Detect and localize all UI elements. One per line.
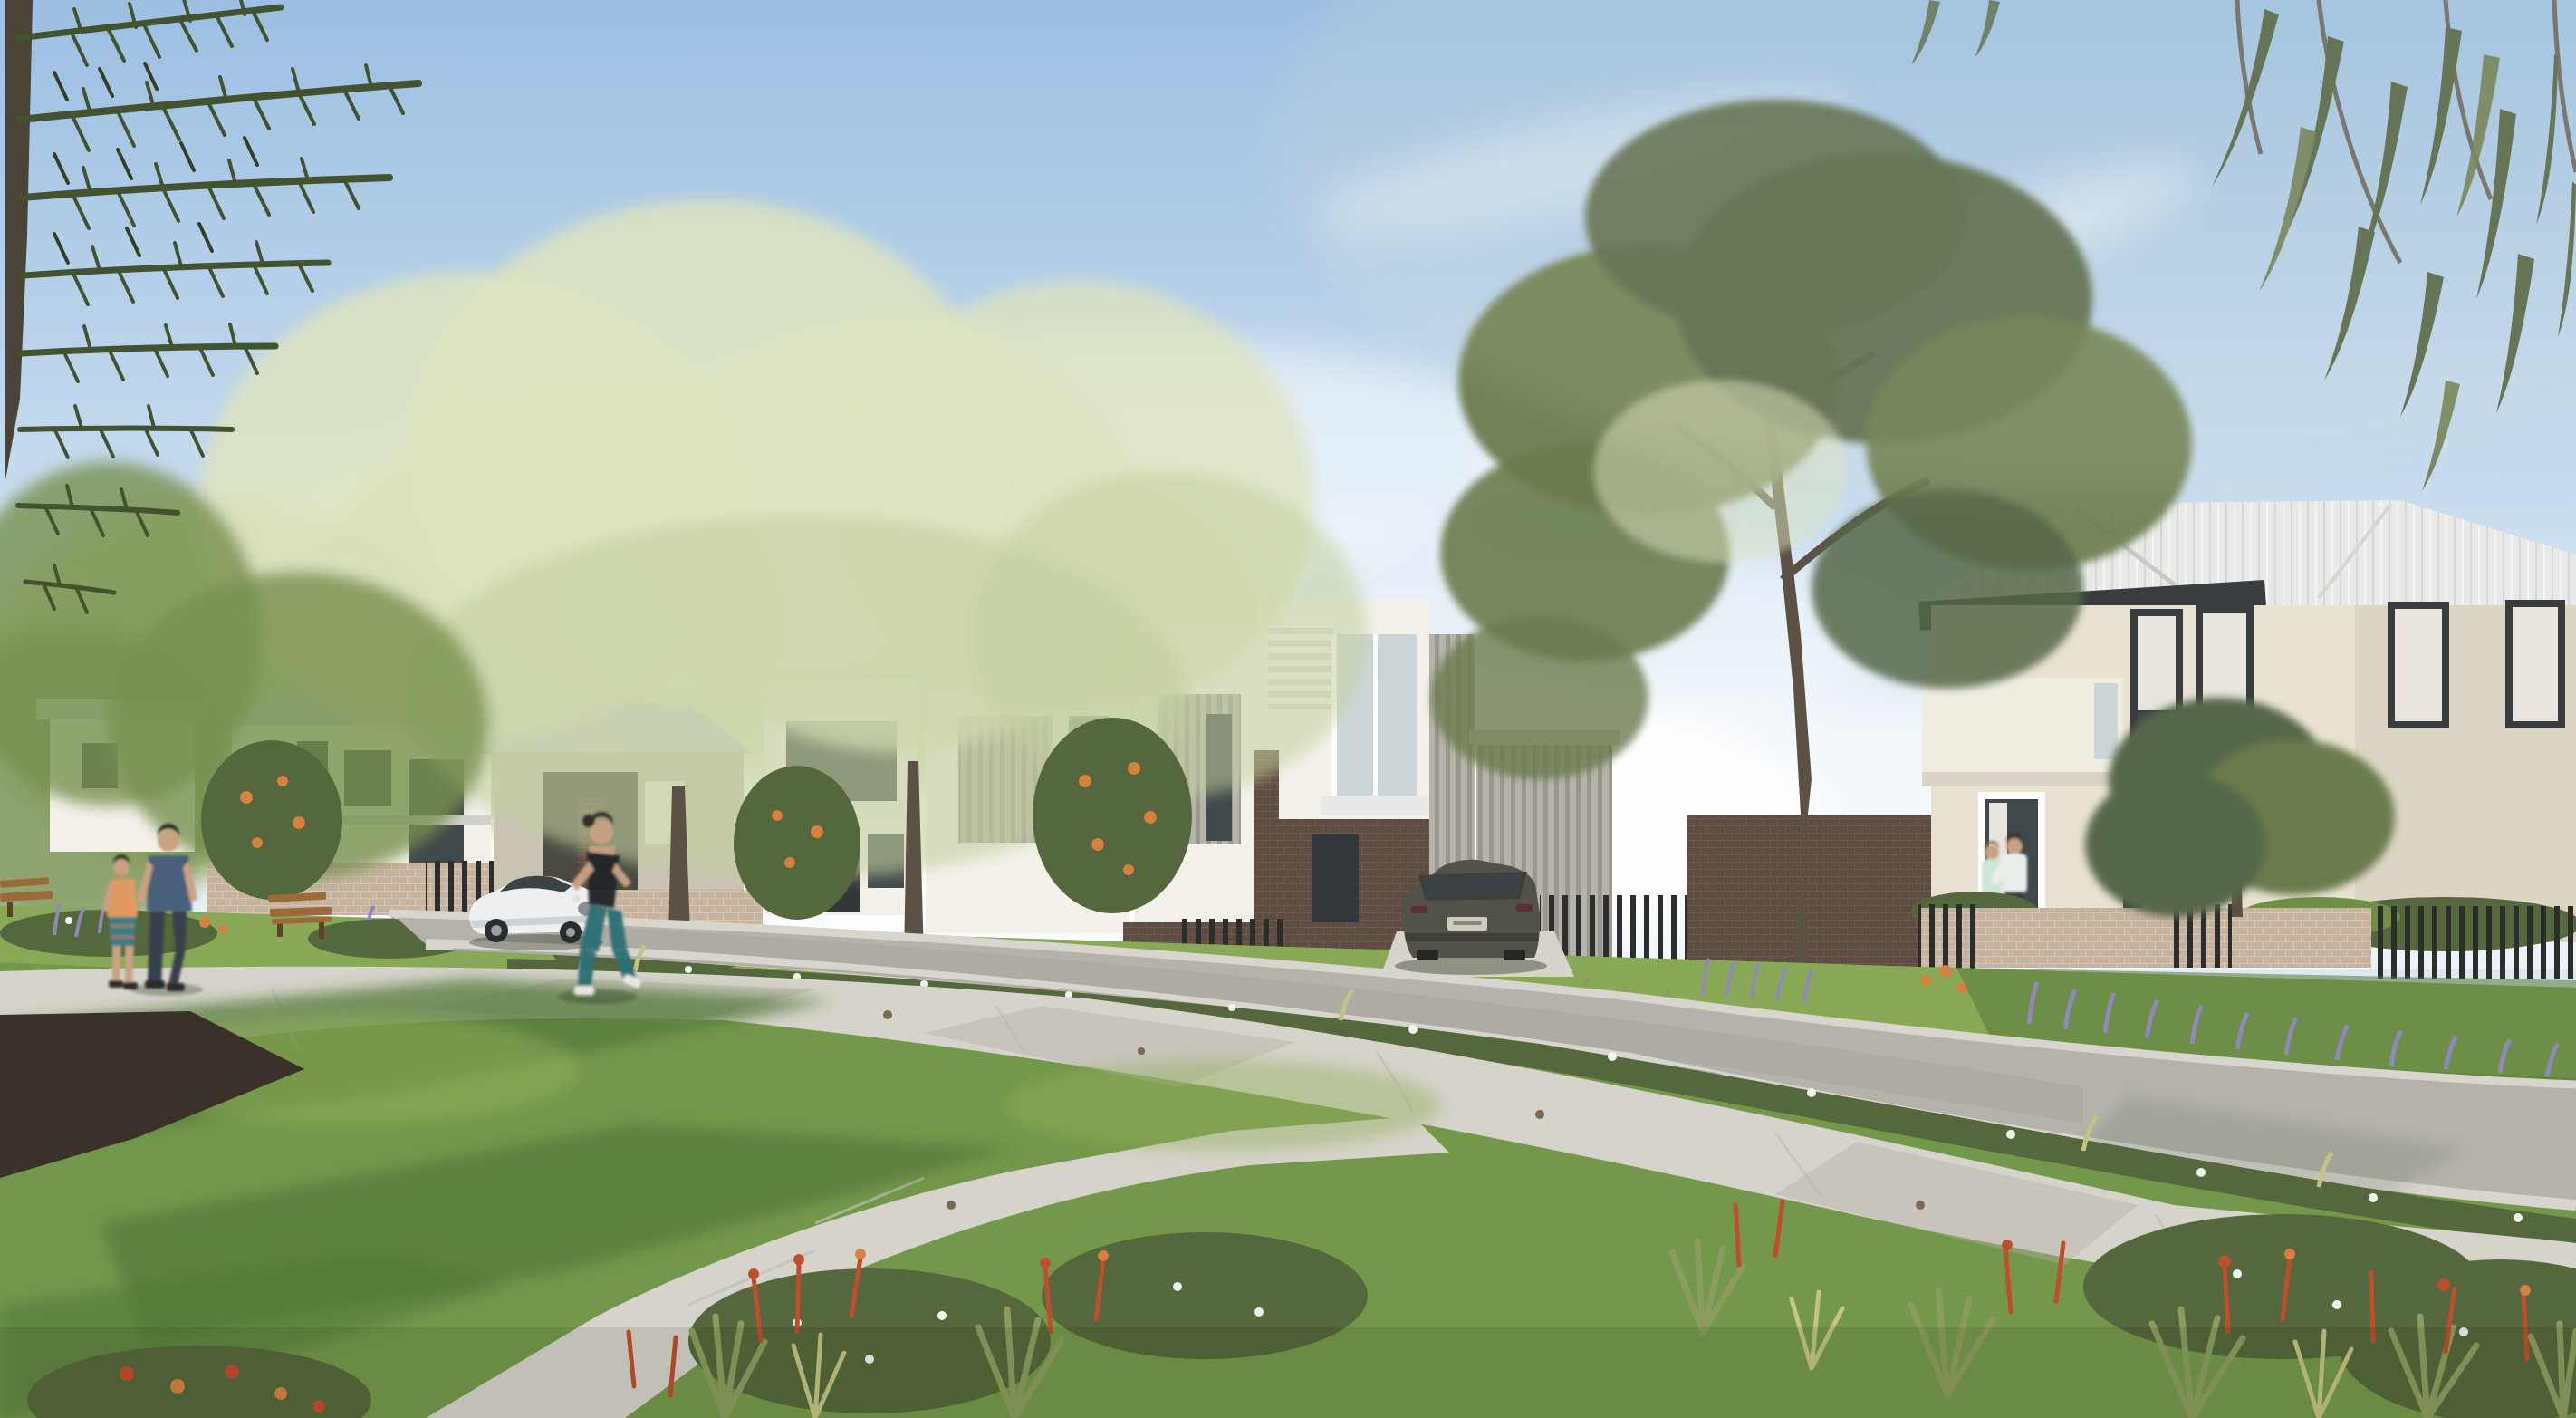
- taillight: [1516, 904, 1533, 912]
- running-shoe: [574, 986, 594, 995]
- window-curtain: [2513, 607, 2558, 721]
- shoe: [145, 980, 165, 989]
- balcony-render: [1922, 678, 2123, 785]
- render-canvas: [0, 0, 2576, 1418]
- hair-bun: [582, 815, 595, 827]
- shoe: [123, 982, 138, 989]
- window-curtain: [2203, 613, 2246, 710]
- plaid-shorts: [109, 917, 136, 946]
- taillight: [1411, 906, 1427, 913]
- wheel: [1417, 950, 1438, 960]
- wheel: [1504, 950, 1525, 960]
- shoe: [109, 980, 123, 988]
- glass-balustrade: [2094, 683, 2118, 759]
- rear-bumper: [1406, 933, 1538, 941]
- side-slat-fence: [2373, 906, 2576, 979]
- shoe: [167, 983, 185, 991]
- balcony-slab: [1321, 796, 1429, 815]
- front-fence-brick: [1918, 908, 2371, 968]
- blue-tshirt: [147, 855, 192, 912]
- window-curtain: [2395, 609, 2442, 721]
- man-shirt: [2002, 854, 2027, 893]
- front-fence-slats: [1918, 904, 1976, 969]
- streetscape-render: [0, 0, 2576, 1418]
- headlight: [572, 895, 580, 902]
- window-curtain: [2138, 616, 2176, 710]
- black-tank-top: [587, 852, 620, 908]
